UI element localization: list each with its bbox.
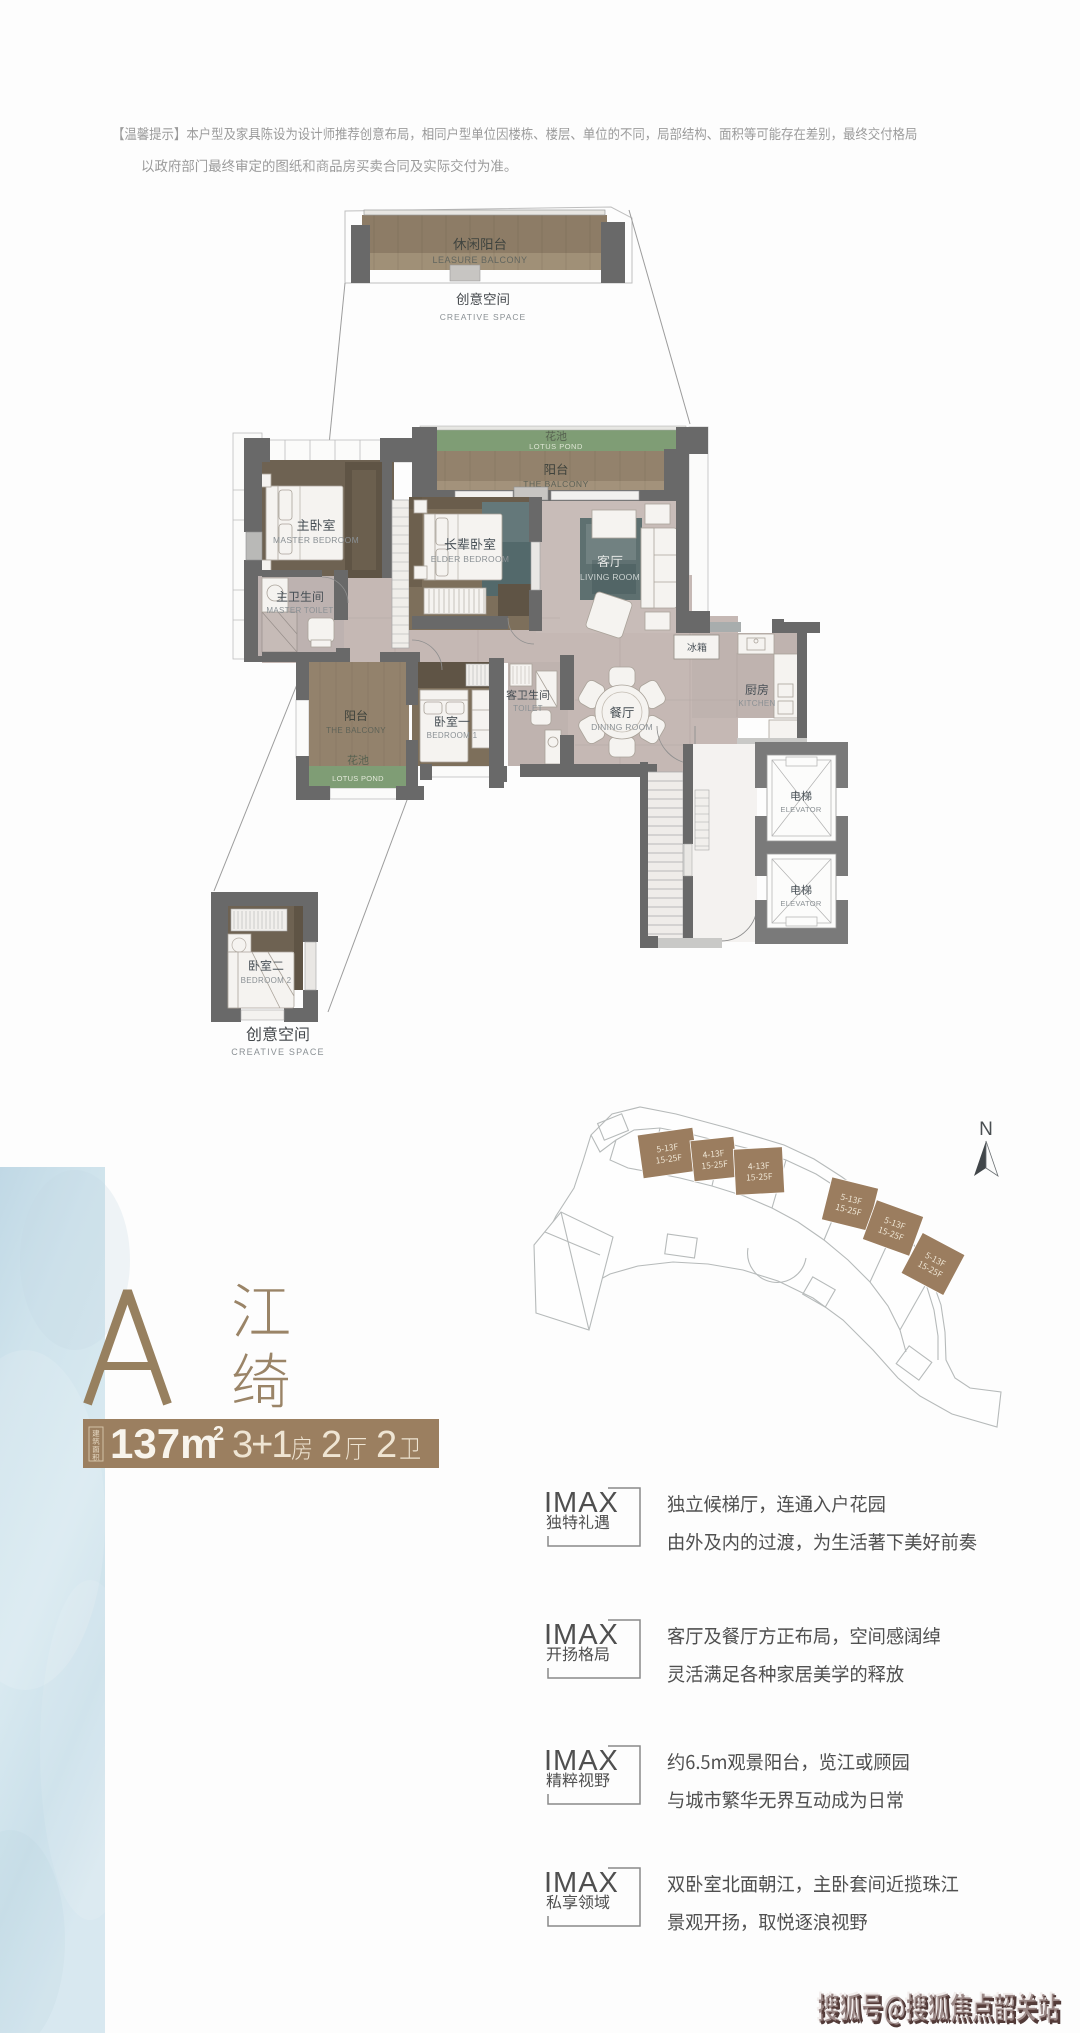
svg-text:BEDROOM 2: BEDROOM 2	[241, 976, 292, 985]
svg-text:KITCHEN: KITCHEN	[738, 699, 775, 708]
svg-text:IMAX: IMAX	[544, 1487, 619, 1519]
svg-text:THE BALCONY: THE BALCONY	[326, 726, 386, 735]
svg-text:137m: 137m	[110, 1420, 217, 1467]
svg-text:N: N	[979, 1119, 993, 1140]
svg-text:ELDER BEDROOM: ELDER BEDROOM	[431, 554, 510, 564]
svg-text:MASTER BEDROOM: MASTER BEDROOM	[273, 535, 359, 545]
svg-text:2: 2	[321, 1424, 342, 1466]
svg-text:ELEVATOR: ELEVATOR	[780, 805, 821, 814]
svg-text:IMAX: IMAX	[544, 1619, 619, 1651]
svg-text:IMAX: IMAX	[544, 1745, 619, 1777]
svg-text:CREATIVE SPACE: CREATIVE SPACE	[231, 1047, 325, 1057]
svg-text:CREATIVE SPACE: CREATIVE SPACE	[440, 312, 526, 322]
svg-text:MASTER TOILET: MASTER TOILET	[266, 606, 333, 615]
svg-text:LOTUS POND: LOTUS POND	[332, 774, 384, 783]
svg-text:3+1: 3+1	[232, 1424, 291, 1466]
svg-text:LOTUS POND: LOTUS POND	[529, 442, 583, 451]
svg-text:DINING ROOM: DINING ROOM	[591, 722, 653, 732]
svg-text:TOILET: TOILET	[513, 704, 543, 713]
svg-text:BEDROOM 1: BEDROOM 1	[427, 731, 478, 740]
svg-text:2: 2	[213, 1423, 224, 1445]
svg-text:LIVING ROOM: LIVING ROOM	[580, 572, 640, 582]
svg-text:LEASURE BALCONY: LEASURE BALCONY	[432, 255, 527, 265]
svg-text:IMAX: IMAX	[544, 1867, 619, 1899]
svg-text:ELEVATOR: ELEVATOR	[780, 899, 821, 908]
svg-text:2: 2	[376, 1424, 397, 1466]
